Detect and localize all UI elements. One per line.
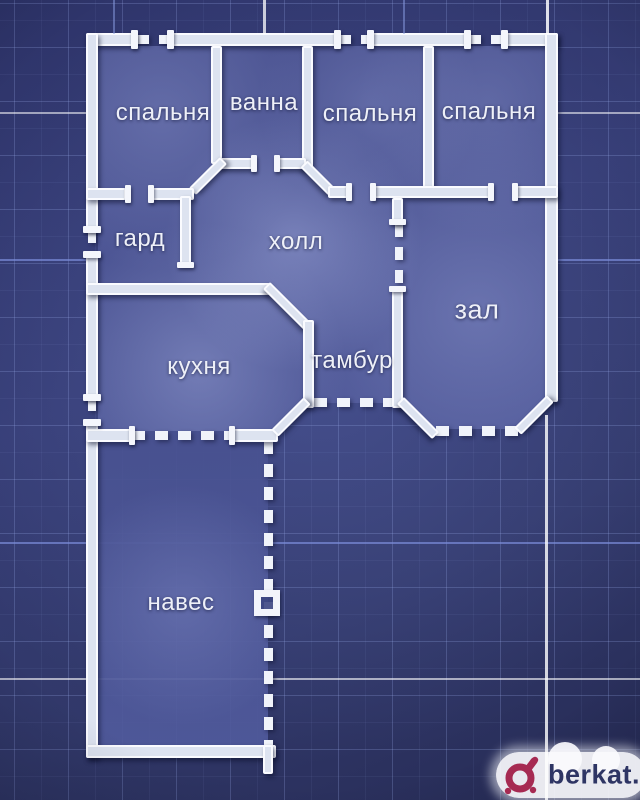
room-label-bedroom-2: спальня: [323, 100, 418, 128]
projection-line-top-faint-2: [403, 0, 405, 34]
window-jamb: [131, 30, 138, 49]
projection-line-top-1: [263, 0, 266, 34]
wall-canopy-corner-stub: [263, 745, 273, 774]
window-jamb: [167, 30, 174, 49]
room-label-vestibule: тамбур: [311, 347, 393, 375]
room-label-hall: холл: [269, 228, 324, 256]
watermark-text: berkat.: [548, 759, 640, 790]
window-jamb: [334, 30, 341, 49]
room-label-canopy: навес: [148, 589, 215, 617]
window-jamb: [83, 419, 101, 426]
wall-bath-bedroom2-divider: [302, 46, 313, 168]
door-jamb: [370, 183, 376, 201]
wall-canopy-bottom: [86, 745, 276, 758]
wall-kitchen-bottom-west: [86, 429, 132, 442]
opening-vestibule-bottom-dashed: [314, 398, 392, 407]
window-top-3: [468, 35, 504, 44]
door-jamb: [148, 185, 154, 203]
wall-livingroom-top-3: [514, 186, 558, 198]
window-jamb: [83, 226, 101, 233]
wall-bedroom2-bedroom3-divider: [423, 46, 434, 188]
wall-right: [545, 33, 558, 402]
window-jamb: [83, 251, 101, 258]
room-label-bedroom-1: спальня: [116, 99, 211, 127]
wall-livingroom-top-2: [372, 186, 490, 198]
window-jamb: [367, 30, 374, 49]
door-jamb: [389, 219, 406, 225]
canopy-post-marker: [254, 590, 280, 616]
projection-line-top-2: [546, 0, 549, 34]
wall-bedroom1-bottom-west: [86, 188, 126, 200]
opening-bay-bottom-dashed: [436, 426, 520, 436]
wall-left-3: [86, 420, 98, 758]
projection-line-top-faint-1: [113, 0, 115, 34]
blueprint-canvas: спальня ванна спальня спальня гард холл …: [0, 0, 640, 800]
window-jamb: [501, 30, 508, 49]
wall-vestibule-right: [392, 288, 403, 408]
door-jamb: [177, 262, 194, 268]
window-top-1: [136, 35, 170, 44]
wall-kitchen-bottom-east: [232, 429, 278, 442]
window-top-2: [338, 35, 370, 44]
door-jamb: [274, 155, 280, 172]
room-label-bath: ванна: [230, 89, 298, 117]
window-jamb: [83, 394, 101, 401]
window-left-1: [88, 230, 96, 252]
room-label-living-room: зал: [455, 295, 500, 326]
wall-top-3: [370, 33, 468, 46]
room-label-kitchen: кухня: [167, 353, 231, 381]
wall-livingroom-top-1: [328, 186, 348, 198]
door-jamb: [488, 183, 494, 201]
opening-hall-livingroom-dashed: [395, 224, 403, 288]
door-jamb: [389, 286, 406, 292]
wall-left-2: [86, 252, 98, 398]
door-jamb: [512, 183, 518, 201]
window-left-2: [88, 398, 96, 420]
wall-kitchen-top: [86, 283, 270, 295]
door-jamb: [125, 185, 131, 203]
door-jamb: [251, 155, 257, 172]
opening-kitchen-bottom-dashed: [132, 431, 232, 440]
projection-line-right-vertical: [545, 415, 548, 800]
wall-left-1: [86, 33, 98, 230]
window-jamb: [464, 30, 471, 49]
wall-top-2: [170, 33, 338, 46]
door-jamb: [229, 426, 235, 445]
room-label-bedroom-3: спальня: [442, 98, 537, 126]
door-jamb: [346, 183, 352, 201]
room-label-wardrobe: гард: [115, 225, 165, 253]
door-jamb: [129, 426, 135, 445]
wall-bedroom1-bath-divider: [211, 46, 222, 164]
berkat-logo-icon: [500, 753, 544, 800]
wall-wardrobe-right: [180, 196, 191, 264]
